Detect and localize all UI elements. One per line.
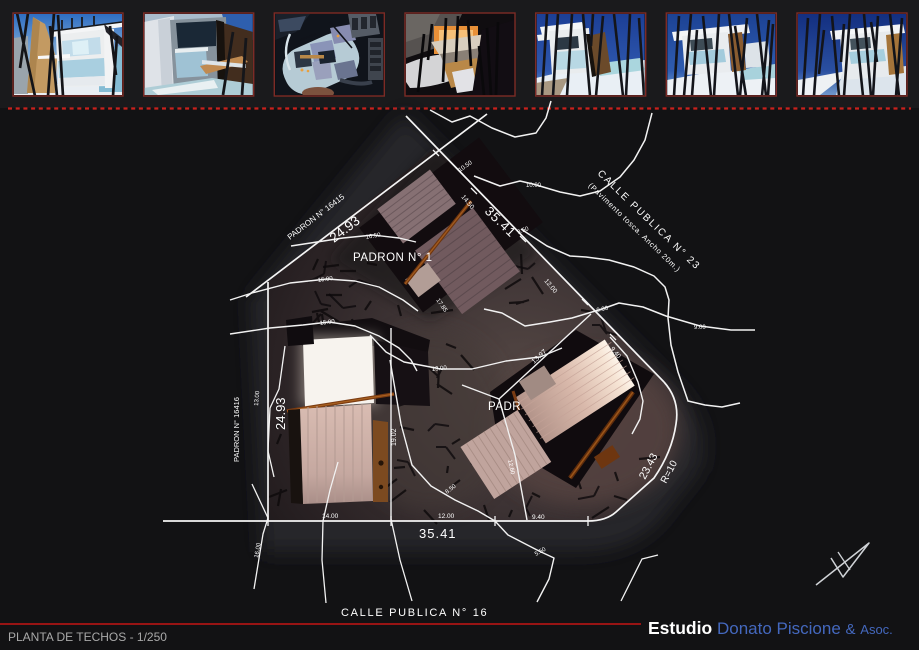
- svg-text:35.41: 35.41: [419, 526, 457, 541]
- svg-text:Estudio: Estudio: [648, 618, 712, 638]
- svg-text:CALLE PUBLICA N° 16: CALLE PUBLICA N° 16: [341, 607, 488, 619]
- svg-text:PADRON N° 1: PADRON N° 1: [353, 252, 433, 264]
- svg-text:19.02: 19.02: [391, 428, 398, 446]
- svg-text:10.00: 10.00: [526, 183, 542, 189]
- svg-text:PADR: PADR: [488, 401, 521, 413]
- svg-text:14.00: 14.00: [322, 513, 339, 520]
- svg-text:Donato Piscione & Asoc.: Donato Piscione & Asoc.: [717, 619, 893, 638]
- svg-text:PADRON N° 16416: PADRON N° 16416: [232, 397, 241, 462]
- svg-text:24.93: 24.93: [273, 397, 288, 430]
- svg-text:PLANTA DE TECHOS - 1/250: PLANTA DE TECHOS - 1/250: [8, 630, 167, 644]
- svg-text:9.00: 9.00: [694, 325, 706, 331]
- svg-text:9.40: 9.40: [532, 514, 545, 521]
- svg-text:12.00: 12.00: [438, 513, 455, 520]
